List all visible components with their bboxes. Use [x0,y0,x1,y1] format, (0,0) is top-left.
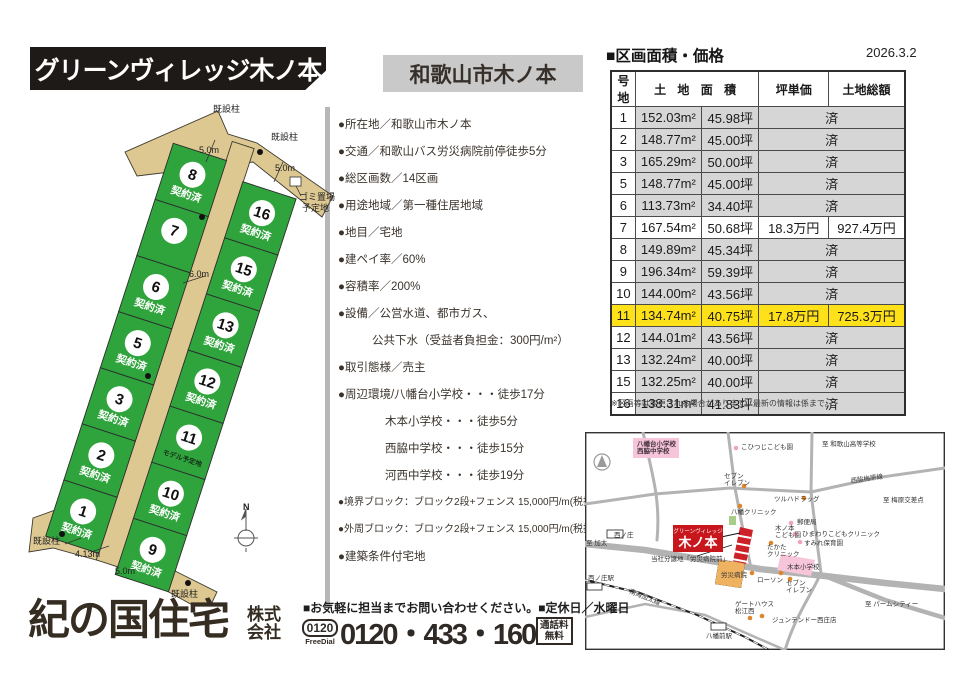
phone-number: 0120・433・160 [340,611,535,653]
station-nishinosho [587,583,602,590]
table-header-row: 号地 土 地 面 積 坪単価 土地総額 [611,71,905,107]
col-header-unit-price: 坪単価 [759,71,828,107]
col-header-total-price: 土地総額 [828,71,905,107]
map-label: 木本小学校 [787,562,820,571]
company-logo-suffix: 株式 会社 [247,606,281,642]
detail-item: ●周辺環境/八幡台小学校・・・徒歩17分 [338,388,590,402]
pole-dot [257,149,263,155]
price-row-lot-6: 6113.73m²34.40坪済 [611,195,905,217]
location-label: 和歌山市木ノ本 [410,59,557,89]
map-label: 西ノ庄駅 [588,573,615,582]
freedial-mark: 0120 FreeDial [302,619,338,646]
detail-item: ●総区画数／14区画 [338,172,590,186]
price-table-body: 1152.03m²45.98坪済2148.77m²45.00坪済3165.29m… [611,107,905,416]
location-box: 和歌山市木ノ本 [383,55,583,92]
toll-free-badge: 通話料 無料 [536,617,573,645]
company-logo: 紀の国住宅 [28,599,228,641]
area-map: グリーンヴィレッジ 木ノ本 八幡台小学校西脇中学校こひつじこども園至 和歌山高等… [585,432,945,650]
plan-label: 既設柱 [33,535,60,546]
price-row-lot-13: 13132.24m²40.00坪済 [611,349,905,371]
price-row-lot-11: 11134.74m²40.75坪17.8万円725.3万円 [611,305,905,327]
map-label: 八幡クリニック [731,507,777,516]
map-label: ジュンテンドー西庄店 [772,615,837,624]
map-label: 労災病院 [721,570,748,579]
title-banner: グリーンヴィレッジ木ノ本 [30,47,326,90]
detail-item: ●用途地域／第一種住居地域 [338,199,590,213]
col-header-area: 土 地 面 積 [635,71,759,107]
detail-item: 木本小学校・・・徒歩5分 [338,415,590,429]
price-row-lot-10: 10144.00m²43.56坪済 [611,283,905,305]
plan-label: 5.0m [115,566,135,576]
detail-item: ●所在地／和歌山市木ノ本 [338,118,590,132]
pole-dot [145,373,151,379]
plan-label: 既設柱 [213,103,240,114]
map-label: 至 加太 [586,538,608,547]
plan-label: 4.13m [75,549,100,559]
price-row-lot-7: 7167.54m²50.68坪18.3万円927.4万円 [611,217,905,239]
station-hachimanmae [711,623,726,630]
pole-dot [185,580,191,586]
map-label: 至 梅原交差点 [883,495,924,504]
map-label: ツルハドラッグ [774,494,820,503]
map-label: 八幡前駅 [706,631,733,640]
page-title: グリーンヴィレッジ木ノ本 [35,51,322,87]
green-patch [729,516,736,525]
site-box-small-label: グリーンヴィレッジ [673,527,723,535]
plan-label: 既設柱 [271,131,298,142]
detail-item: ●容積率／200% [338,280,590,294]
map-label: 当社分譲地「労災病院前」 [651,554,729,563]
detail-item: ●交通／和歌山バス労災病院前停徒歩5分 [338,145,590,159]
map-label: 西ノ庄 [614,530,634,539]
price-row-lot-2: 2148.77m²45.00坪済 [611,129,905,151]
price-row-lot-12: 12144.01m²43.56坪済 [611,327,905,349]
price-row-lot-8: 8149.89m²45.34坪済 [611,239,905,261]
price-row-lot-5: 5148.77m²45.00坪済 [611,173,905,195]
poi-dot [798,540,803,545]
poi-dot [760,614,765,619]
map-label: 至 和歌山高等学校 [822,439,876,448]
price-row-lot-15: 15132.25m²40.00坪済 [611,371,905,393]
detail-item: ●建ペイ率／60% [338,253,590,267]
poi-dot [738,504,743,509]
site-plan: 8契約済76契約済5契約済3契約済2契約済1契約済 16契約済15契約済13契約… [25,100,335,605]
table-footnote: ※区画等は変更される場合があります。最新の情報は係まで。 [611,398,833,409]
detail-item: ●取引態様／売主 [338,361,590,375]
poi-dot [748,616,753,621]
price-section-heading: ■区画面積・価格 [606,44,724,66]
plan-label: 5.0m [199,145,219,155]
site-box-large-label: 木ノ本 [677,535,717,550]
detail-item: ●建築条件付宅地 [338,550,590,564]
price-table: 号地 土 地 面 積 坪単価 土地総額 1152.03m²45.98坪済2148… [610,70,906,416]
map-label: ローソン [757,577,783,584]
detail-item: 河西中学校・・・徒歩19分 [338,469,590,483]
garbage-area-box [290,177,301,186]
plan-label: ゴミ置場 [299,191,335,202]
detail-item: 西脇中学校・・・徒歩15分 [338,442,590,456]
col-header-lot: 号地 [611,71,635,107]
compass-icon [234,509,258,552]
price-row-lot-9: 9196.34m²59.39坪済 [611,261,905,283]
detail-item: 公共下水（受益者負担金：300円/m²） [338,334,590,348]
details-list: ●所在地／和歌山市木ノ本●交通／和歌山バス労災病院前停徒歩5分●総区画数／14区… [338,118,590,577]
map-label: ひまわりこどもクリニック [802,530,880,538]
detail-item: ●境界ブロック：ブロック2段+フェンス 15,000円/m(税抜) [338,496,590,510]
detail-item: ●設備／公営水道、都市ガス、 [338,307,590,321]
pole-dot [199,214,205,220]
plan-label: 6.0m [189,269,209,279]
price-row-lot-1: 1152.03m²45.98坪済 [611,107,905,129]
price-row-lot-3: 3165.29m²50.00坪済 [611,151,905,173]
map-label: こひつじこども園 [741,443,793,451]
map-border [586,433,945,650]
plan-label: N [243,502,250,512]
price-date: 2026.3.2 [866,45,917,60]
map-label: すみれ保育園 [804,538,843,547]
poi-dot [750,571,755,576]
map-label: 至 パームシティー [865,600,918,608]
detail-item: ●外周ブロック：ブロック2段+フェンス 15,000円/m(税抜) [338,523,590,537]
detail-item: ●地目／宅地 [338,226,590,240]
plan-label: 5.0m [275,163,295,173]
plan-label: 予定地 [302,202,329,213]
poi-dot [779,571,784,576]
poi-dot [734,446,739,451]
map-label: 郵便局 [797,517,817,526]
